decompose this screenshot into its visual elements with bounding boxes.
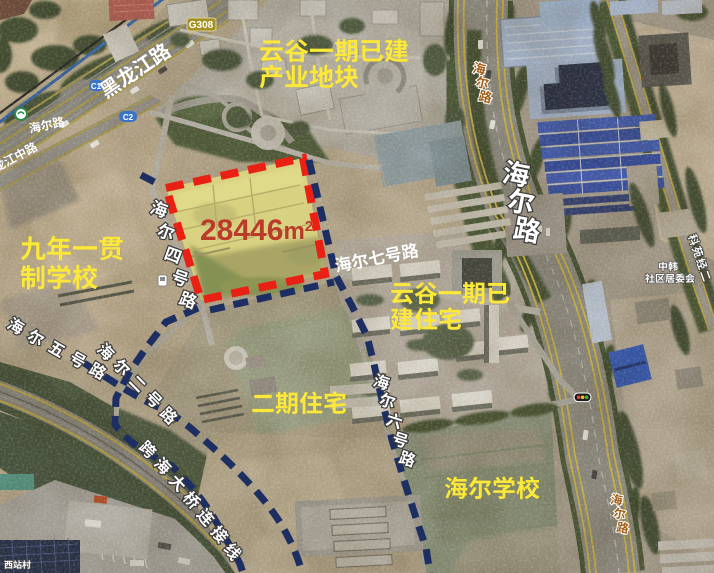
- svg-text:G308: G308: [189, 20, 214, 31]
- svg-text:28446m2: 28446m2: [200, 214, 313, 247]
- svg-text:C2: C2: [123, 113, 134, 122]
